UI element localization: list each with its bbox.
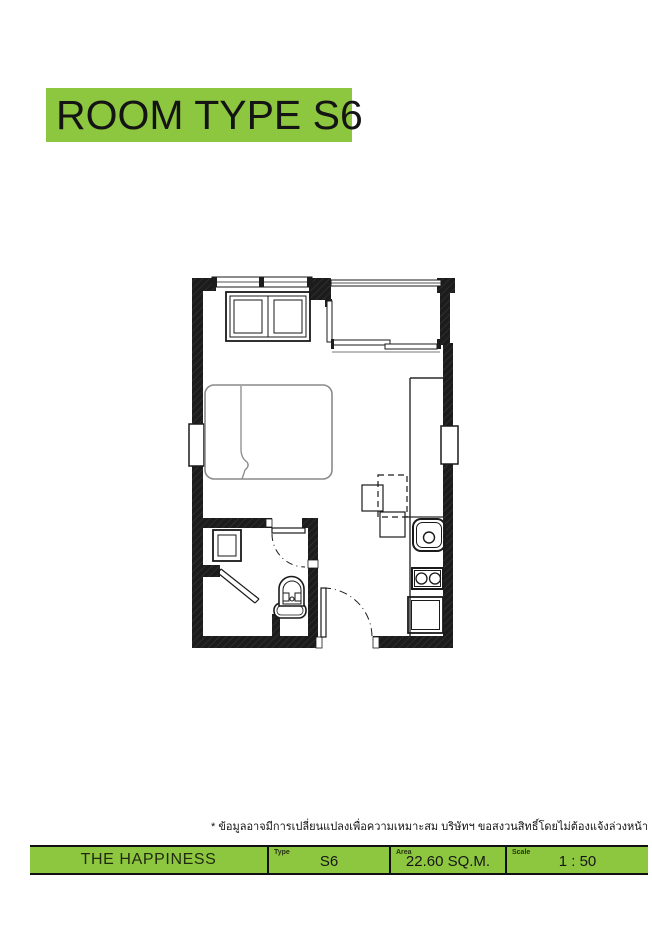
floor-plan bbox=[0, 0, 652, 926]
footer-brand-cell: THE HAPPINESS bbox=[30, 847, 267, 873]
stove bbox=[412, 568, 443, 589]
washbasin bbox=[213, 530, 241, 561]
brand-name: THE HAPPINESS bbox=[81, 851, 217, 869]
left-wall-niche bbox=[189, 424, 204, 466]
footer-scale-cell: Scale 1 : 50 bbox=[505, 847, 648, 873]
window bbox=[212, 277, 312, 287]
sink bbox=[413, 519, 445, 551]
scale-value: 1 : 50 bbox=[507, 853, 648, 870]
stool bbox=[362, 485, 405, 537]
entry-door bbox=[316, 588, 379, 648]
toilet bbox=[274, 577, 306, 619]
footer-bar: THE HAPPINESS Type S6 Area 22.60 SQ.M. S… bbox=[30, 845, 648, 875]
footer-area-cell: Area 22.60 SQ.M. bbox=[389, 847, 505, 873]
disclaimer-note: * ข้อมูลอาจมีการเปลี่ยนแปลงเพื่อความเหมา… bbox=[48, 817, 648, 835]
base-cabinet bbox=[408, 597, 443, 633]
sliding-door bbox=[331, 339, 441, 352]
type-value: S6 bbox=[269, 853, 389, 870]
right-wall-niche bbox=[441, 426, 458, 464]
shower-screen bbox=[218, 569, 259, 603]
footer-type-cell: Type S6 bbox=[267, 847, 389, 873]
area-value: 22.60 SQ.M. bbox=[391, 853, 505, 870]
bed bbox=[205, 385, 332, 479]
balcony-parapet bbox=[327, 280, 441, 342]
wardrobe bbox=[226, 292, 310, 341]
